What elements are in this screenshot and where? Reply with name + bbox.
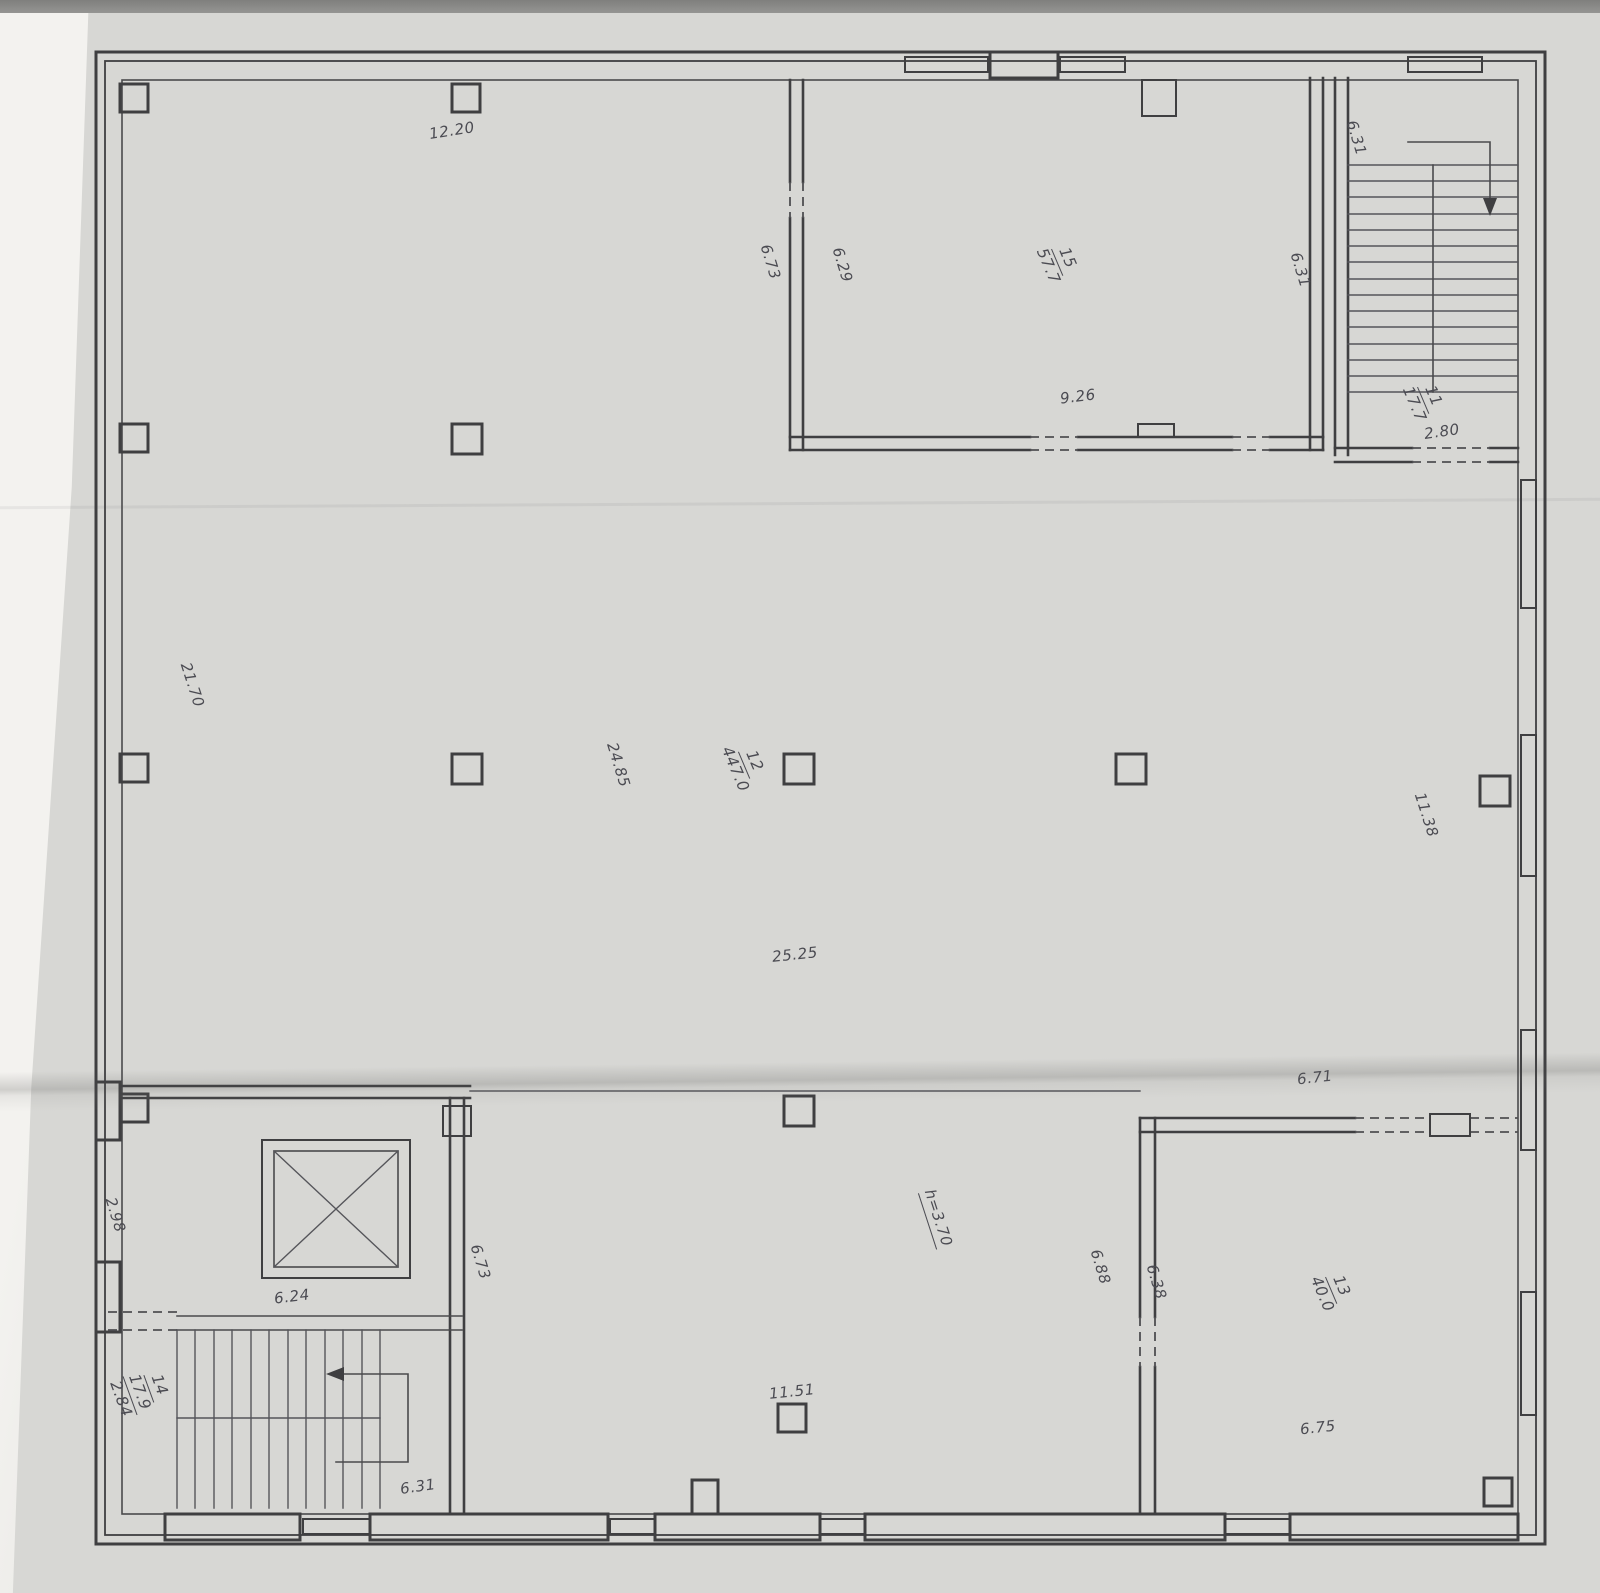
right-wall-windows <box>1521 480 1536 1415</box>
floor-plan-drawing <box>0 0 1600 1593</box>
dim-room15-bottom: 9.26 <box>1059 387 1096 406</box>
columns <box>120 84 1512 1514</box>
dim-room13-bottom: 6.75 <box>1299 1419 1336 1438</box>
room13-walls <box>1140 1114 1518 1514</box>
dim-lift-width: 6.24 <box>273 1287 310 1306</box>
lift-cross <box>274 1151 398 1267</box>
bottom-wall-windows-and-piers <box>165 1514 1518 1540</box>
outer-walls <box>96 52 1545 1544</box>
stair-direction-line <box>1408 142 1490 198</box>
stair-left-arrow-icon <box>326 1367 344 1381</box>
top-wall-windows <box>905 52 1482 78</box>
scanned-floor-plan-page: 12.20 6.73 6.29 15 57.7 6.31 6.31 9.26 1… <box>0 0 1600 1593</box>
